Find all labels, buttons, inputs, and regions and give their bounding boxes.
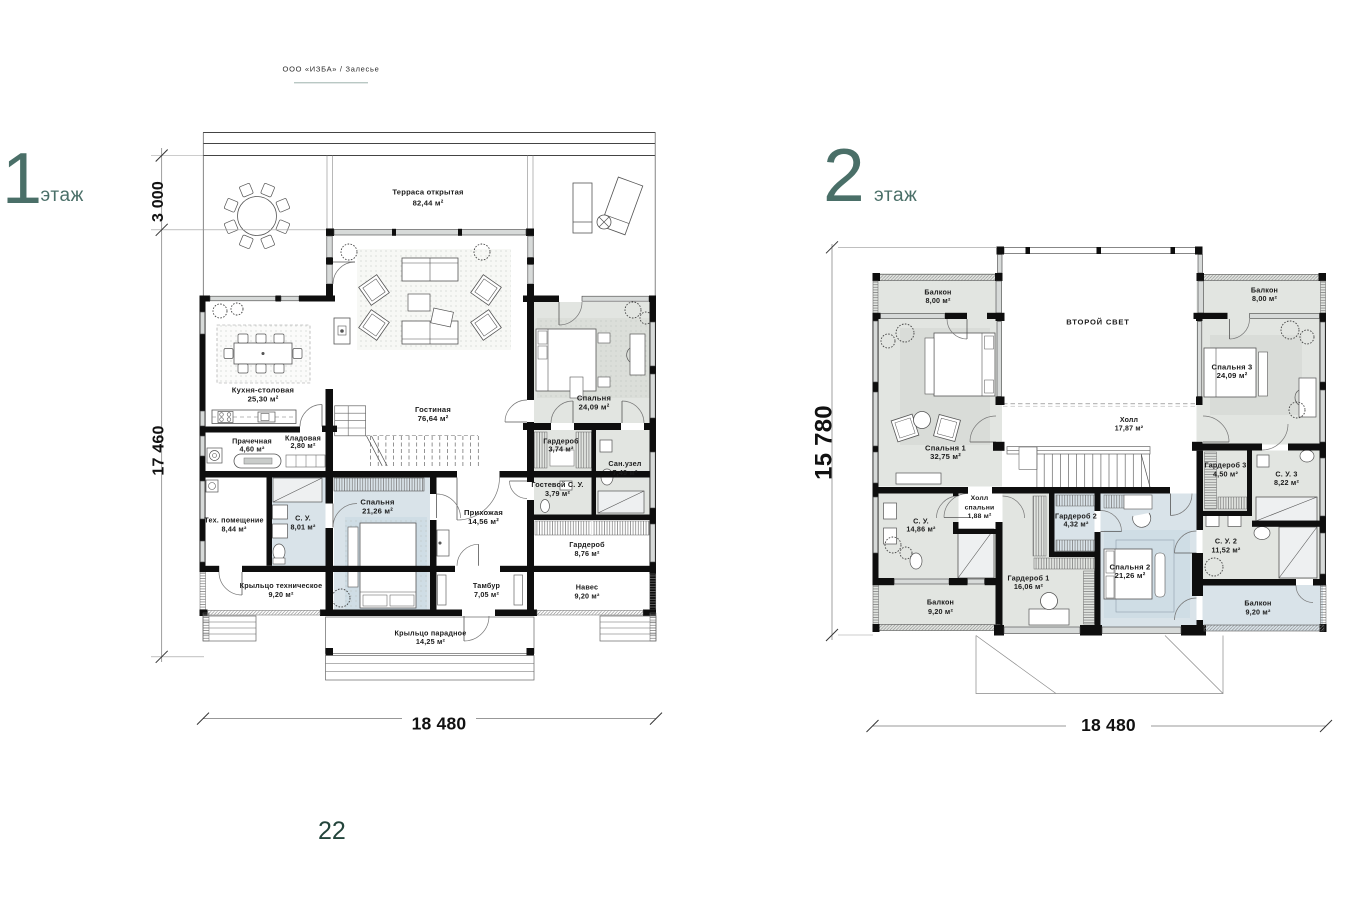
svg-text:82,44 м²: 82,44 м² [413,199,444,208]
svg-text:Спальня: Спальня [360,498,394,507]
svg-text:24,09 м²: 24,09 м² [579,402,610,411]
svg-text:7,49 м²: 7,49 м² [612,468,638,477]
svg-text:17 460: 17 460 [151,425,168,475]
svg-text:С. У. 2: С. У. 2 [1215,537,1237,546]
svg-text:18 480: 18 480 [1081,715,1136,735]
svg-text:3 000: 3 000 [150,181,167,222]
svg-text:8,22 м²: 8,22 м² [1274,478,1300,487]
svg-text:24,09 м²: 24,09 м² [1217,371,1248,380]
svg-text:8,00 м²: 8,00 м² [925,296,951,305]
svg-text:15 780: 15 780 [811,405,838,480]
svg-text:14,56 м²: 14,56 м² [468,517,499,526]
svg-text:Холл: Холл [971,495,989,502]
svg-text:ООО «ИЗБА» / Залесье: ООО «ИЗБА» / Залесье [283,65,380,74]
svg-text:9,20 м²: 9,20 м² [268,590,294,599]
svg-text:Балкон: Балкон [927,598,954,607]
svg-text:7,05 м²: 7,05 м² [474,590,500,599]
svg-text:8,00 м²: 8,00 м² [1252,294,1278,303]
svg-text:4,60 м²: 4,60 м² [239,444,265,453]
svg-text:9,20 м²: 9,20 м² [574,591,600,600]
svg-text:спальни: спальни [965,504,995,511]
svg-text:Сан.узел: Сан.узел [608,459,641,468]
svg-text:Гардероб: Гардероб [569,540,605,549]
svg-text:этаж: этаж [874,185,917,206]
svg-text:Кухня-столовая: Кухня-столовая [232,386,294,395]
svg-text:Тех. помещение: Тех. помещение [204,516,264,525]
svg-text:С. У.: С. У. [295,514,311,523]
svg-text:этаж: этаж [41,185,84,206]
svg-text:18 480: 18 480 [412,714,467,734]
svg-text:Крыльцо техническое: Крыльцо техническое [240,581,323,590]
svg-text:9,20 м²: 9,20 м² [928,607,954,616]
svg-text:Спальня: Спальня [577,394,611,403]
svg-text:14,25 м²: 14,25 м² [416,637,446,646]
svg-text:14,86 м²: 14,86 м² [906,525,936,534]
svg-text:Балкон: Балкон [1244,599,1271,608]
svg-text:8,44 м²: 8,44 м² [221,525,247,534]
svg-text:3,74 м²: 3,74 м² [548,444,574,453]
svg-text:11,52 м²: 11,52 м² [1212,545,1241,554]
svg-text:2: 2 [823,133,865,217]
svg-text:9,20 м²: 9,20 м² [1245,607,1271,616]
svg-text:21,26 м²: 21,26 м² [1115,571,1146,580]
svg-text:1,88 м²: 1,88 м² [968,513,992,520]
svg-text:Тамбур: Тамбур [473,581,501,590]
svg-text:Терраса открытая: Терраса открытая [392,188,463,197]
svg-text:17,87 м²: 17,87 м² [1115,425,1144,432]
svg-text:3,79 м²: 3,79 м² [545,489,571,498]
svg-text:2,80 м²: 2,80 м² [290,441,316,450]
svg-text:ВТОРОЙ СВЕТ: ВТОРОЙ СВЕТ [1066,318,1129,327]
svg-text:Гостевой С. У.: Гостевой С. У. [531,480,583,489]
svg-text:22: 22 [318,817,346,845]
svg-text:8,01 м²: 8,01 м² [290,522,316,531]
svg-text:1: 1 [2,139,42,219]
svg-text:16,06 м²: 16,06 м² [1014,582,1044,591]
svg-text:Гардероб 3: Гардероб 3 [1205,461,1247,470]
svg-text:Холл: Холл [1120,417,1138,424]
svg-text:8,76 м²: 8,76 м² [574,549,600,558]
svg-text:25,30 м²: 25,30 м² [248,394,279,403]
svg-text:21,26 м²: 21,26 м² [362,506,393,515]
svg-text:Навес: Навес [576,583,598,592]
svg-text:76,64 м²: 76,64 м² [418,414,449,423]
svg-text:32,75 м²: 32,75 м² [930,452,961,461]
svg-text:4,32 м²: 4,32 м² [1063,520,1089,529]
svg-text:Гостиная: Гостиная [415,405,451,414]
svg-text:4,50 м²: 4,50 м² [1213,469,1239,478]
svg-text:Прихожая: Прихожая [464,508,503,517]
